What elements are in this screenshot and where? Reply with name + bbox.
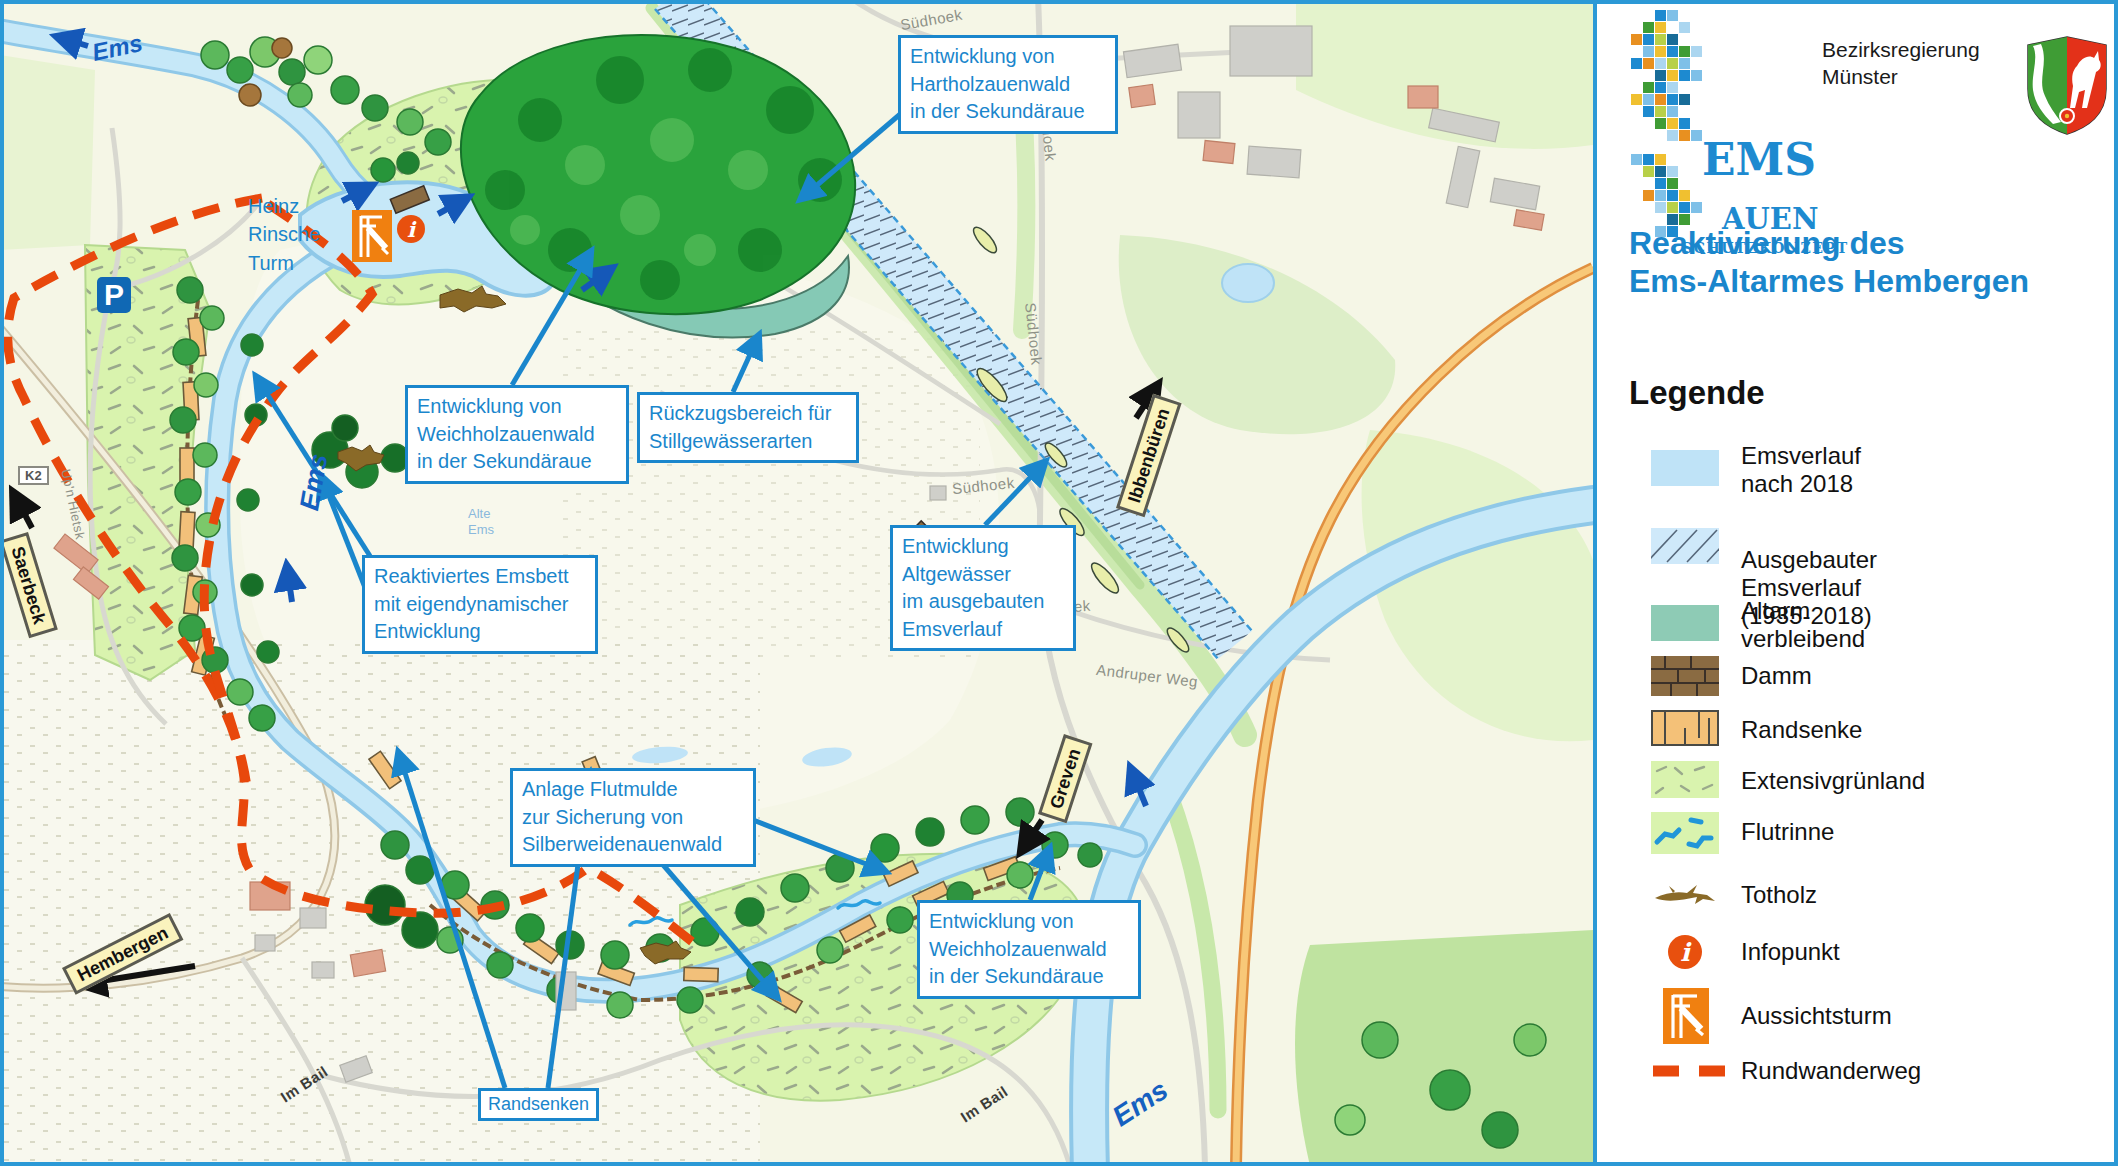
poster: Entwicklung von Hartholzauenwald in der … — [0, 0, 2118, 1166]
legend-label: Emsverlauf nach 2018 — [1741, 442, 1861, 498]
callout-rueckzugsbereich: Rückzugsbereich für Stillgewässerarten — [637, 392, 859, 463]
map-canvas — [0, 0, 1593, 1166]
legend-label: Damm — [1741, 662, 1812, 690]
legend-label: Flutrinne — [1741, 818, 1834, 846]
legend-title: Legende — [1629, 376, 1765, 409]
legend-label: Extensivgrünland — [1741, 767, 1925, 795]
legend-label: Altarm verbleibend — [1741, 597, 1865, 653]
callout-reaktiviertes-emsbett: Reaktiviertes Emsbett mit eigendynamisch… — [362, 555, 598, 654]
callout-altgewaesser: Entwicklung Altgewässer im ausgebauten E… — [890, 525, 1076, 651]
swatch-ausgebaut — [1651, 528, 1719, 568]
river-label-alte-ems: Alte Ems — [468, 506, 494, 539]
logo-text-ems: EMS — [1702, 134, 1816, 185]
rundwanderweg-legend-icon — [1651, 1058, 1725, 1088]
aussichtsturm-icon — [352, 210, 392, 266]
swatch-emsverlauf — [1651, 450, 1719, 490]
swatch-extensivgruenland — [1651, 761, 1719, 802]
sign-k2: K2 — [18, 466, 49, 485]
map-area: Entwicklung von Hartholzauenwald in der … — [0, 0, 1593, 1166]
parking-icon: P — [97, 277, 131, 313]
legend-label: Infopunkt — [1741, 938, 1840, 966]
poi-label-heinz-rinsche-turm: Heinz Rinsche Turm — [248, 192, 340, 277]
swatch-damm — [1651, 656, 1719, 700]
totholz-icon — [1651, 878, 1719, 916]
nrw-coat-of-arms — [2027, 36, 2107, 140]
legend-label: Randsenke — [1741, 716, 1862, 744]
swatch-altarm — [1651, 605, 1719, 645]
callout-weichholz-top: Entwicklung von Weichholzauenwald in der… — [405, 385, 629, 484]
swatch-randsenke — [1651, 710, 1719, 750]
callout-flutmulde: Anlage Flutmulde zur Sicherung von Silbe… — [510, 768, 756, 867]
callout-weichholz-bottom: Entwicklung von Weichholzauenwald in der… — [917, 900, 1141, 999]
legend-label: Totholz — [1741, 881, 1817, 909]
org-name: Bezirksregierung Münster — [1822, 36, 1980, 90]
page-title: Reaktivierung des Ems-Altarmes Hembergen — [1629, 224, 2029, 300]
callout-hartholz: Entwicklung von Hartholzauenwald in der … — [898, 35, 1118, 134]
callout-randsenken: Randsenken — [478, 1088, 599, 1121]
infopunkt-legend-icon: i — [1667, 934, 1703, 974]
swatch-flutrinne — [1651, 812, 1719, 858]
legend-panel: EMS AUEN SCHUTZKONZEPT Bezirksregierung … — [1593, 0, 2118, 1166]
infopunkt-icon: i — [396, 214, 426, 248]
aussichtsturm-legend-icon — [1663, 988, 1709, 1048]
legend-label: Aussichtsturm — [1741, 1002, 1892, 1030]
legend-label: Rundwanderweg — [1741, 1057, 1921, 1085]
